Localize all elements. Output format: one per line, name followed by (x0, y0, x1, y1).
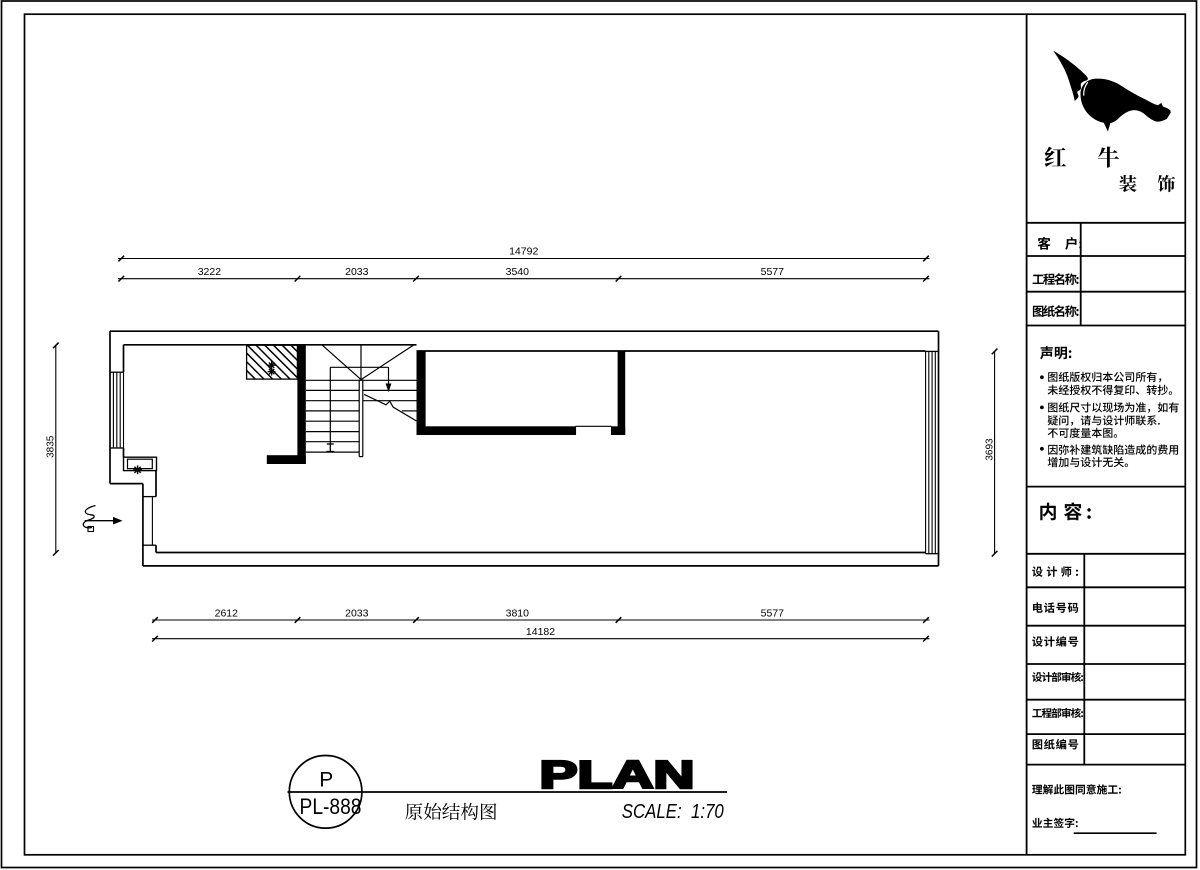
svg-text:2033: 2033 (345, 266, 369, 278)
svg-text:5577: 5577 (761, 608, 785, 620)
svg-text:2612: 2612 (215, 608, 239, 620)
svg-text:2033: 2033 (345, 608, 369, 620)
svg-text:5577: 5577 (761, 266, 785, 278)
svg-text:3540: 3540 (506, 266, 530, 278)
svg-text:14182: 14182 (526, 626, 555, 638)
svg-text:PL-888: PL-888 (300, 794, 362, 819)
svg-text:PLAN: PLAN (540, 754, 695, 797)
svg-text:3810: 3810 (506, 608, 530, 620)
svg-text:P: P (319, 769, 333, 792)
svg-text:3835: 3835 (46, 435, 57, 458)
svg-text:3222: 3222 (198, 266, 222, 278)
svg-text:3693: 3693 (984, 438, 995, 461)
svg-text:SCALE: 1:70: SCALE: 1:70 (622, 800, 724, 823)
svg-text:14792: 14792 (509, 246, 538, 258)
